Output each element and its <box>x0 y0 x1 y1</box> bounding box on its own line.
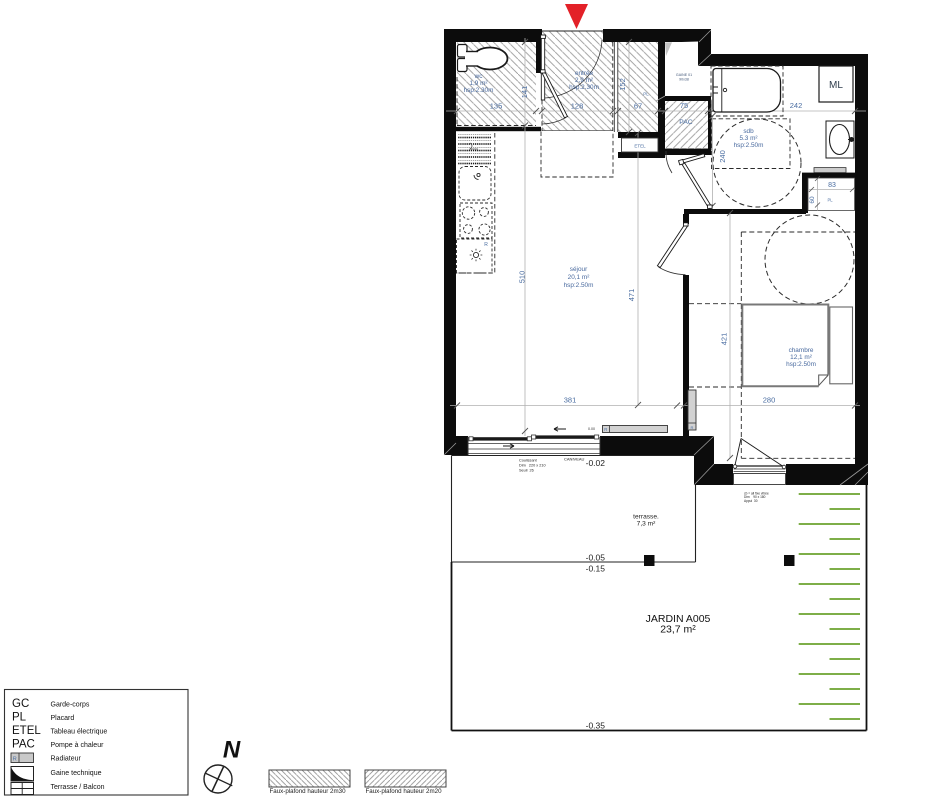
svg-text:R: R <box>691 425 694 430</box>
svg-text:0.00: 0.00 <box>588 427 595 431</box>
svg-text:152: 152 <box>618 78 627 91</box>
svg-text:CANIVEAU: CANIVEAU <box>564 457 585 462</box>
svg-text:Coulissant: Coulissant <box>519 459 538 463</box>
svg-text:280: 280 <box>763 396 776 405</box>
svg-text:PL: PL <box>643 92 649 97</box>
svg-text:75: 75 <box>680 101 688 110</box>
svg-text:sdb: sdb <box>743 128 754 135</box>
svg-text:60: 60 <box>809 196 816 204</box>
svg-text:510: 510 <box>518 271 527 284</box>
svg-text:1,9 m²: 1,9 m² <box>469 80 487 87</box>
svg-text:ETEL: ETEL <box>12 725 41 737</box>
svg-text:141: 141 <box>520 86 529 99</box>
svg-text:PL: PL <box>12 712 27 724</box>
svg-text:381: 381 <box>564 396 577 405</box>
svg-text:23,7 m²: 23,7 m² <box>660 624 696 636</box>
svg-text:hsp:2.30m: hsp:2.30m <box>569 84 599 91</box>
svg-text:Appui 30: Appui 30 <box>744 499 758 503</box>
svg-text:wc: wc <box>474 73 484 80</box>
svg-text:128: 128 <box>571 102 584 111</box>
svg-text:-0.05: -0.05 <box>586 553 606 563</box>
svg-text:-0.35: -0.35 <box>586 721 606 731</box>
svg-text:PAC: PAC <box>679 119 693 126</box>
svg-text:471: 471 <box>627 289 636 302</box>
svg-text:entrée: entrée <box>575 70 594 77</box>
svg-text:R: R <box>484 242 488 248</box>
svg-text:Faux-plafond hauteur 2m20: Faux-plafond hauteur 2m20 <box>366 788 443 795</box>
svg-text:R: R <box>604 427 607 432</box>
svg-text:135: 135 <box>490 102 503 111</box>
svg-text:ML: ML <box>829 80 843 91</box>
svg-text:PAC: PAC <box>12 739 35 751</box>
svg-text:N: N <box>223 737 241 764</box>
svg-text:Gaine technique: Gaine technique <box>51 770 102 777</box>
svg-text:12,1 m²: 12,1 m² <box>790 354 812 361</box>
svg-text:240: 240 <box>718 150 727 163</box>
svg-text:Radiateur: Radiateur <box>51 756 82 763</box>
svg-text:hsp:2.50m: hsp:2.50m <box>786 361 816 368</box>
svg-text:ETEL: ETEL <box>634 144 646 149</box>
svg-text:Garde-corps: Garde-corps <box>51 702 90 709</box>
svg-text:242: 242 <box>790 101 803 110</box>
svg-text:Seuil 26: Seuil 26 <box>519 469 534 473</box>
svg-text:20,1 m²: 20,1 m² <box>568 274 590 281</box>
svg-text:chambre: chambre <box>789 347 814 354</box>
svg-text:-0.02: -0.02 <box>586 458 606 468</box>
svg-text:Faux-plafond hauteur 2m30: Faux-plafond hauteur 2m30 <box>270 788 347 795</box>
svg-text:2,9 m²: 2,9 m² <box>575 77 593 84</box>
svg-text:Terrasse / Balcon: Terrasse / Balcon <box>51 784 105 791</box>
svg-text:PL: PL <box>827 198 833 203</box>
svg-text:GC: GC <box>12 698 29 710</box>
svg-text:séjour: séjour <box>570 266 588 273</box>
svg-text:hsp:2.50m: hsp:2.50m <box>734 142 764 149</box>
svg-text:90x38: 90x38 <box>679 78 689 82</box>
svg-text:Pompe à chaleur: Pompe à chaleur <box>51 742 105 749</box>
svg-text:421: 421 <box>720 333 729 346</box>
svg-text:Tableau électrique: Tableau électrique <box>51 729 108 736</box>
svg-text:Dim 220 x 210: Dim 220 x 210 <box>519 464 546 468</box>
svg-text:Placard: Placard <box>51 715 75 722</box>
svg-text:R: R <box>13 757 17 763</box>
svg-text:hsp:2.30m: hsp:2.30m <box>464 87 494 94</box>
svg-text:GAINE 01: GAINE 01 <box>676 73 692 77</box>
svg-text:terrasse.: terrasse. <box>633 514 659 521</box>
svg-text:5.3 m²: 5.3 m² <box>739 135 757 142</box>
svg-text:83: 83 <box>828 182 836 189</box>
svg-text:7,3 m²: 7,3 m² <box>637 521 656 528</box>
svg-text:67: 67 <box>634 102 642 111</box>
svg-text:hsp:2.50m: hsp:2.50m <box>564 282 594 289</box>
svg-text:-0.15: -0.15 <box>586 564 606 574</box>
